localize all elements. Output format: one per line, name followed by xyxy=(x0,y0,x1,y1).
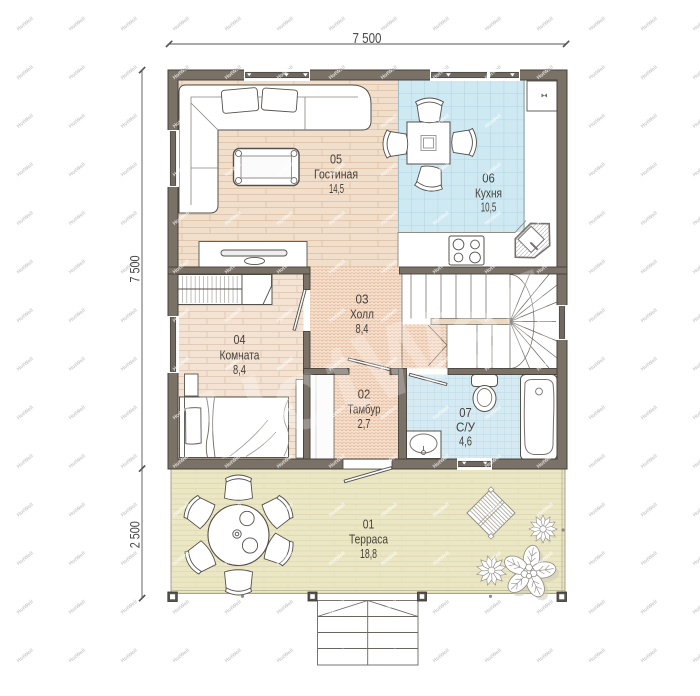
svg-text:2 500: 2 500 xyxy=(127,521,142,548)
svg-text:7 500: 7 500 xyxy=(128,256,143,283)
svg-text:7 500: 7 500 xyxy=(353,30,382,47)
